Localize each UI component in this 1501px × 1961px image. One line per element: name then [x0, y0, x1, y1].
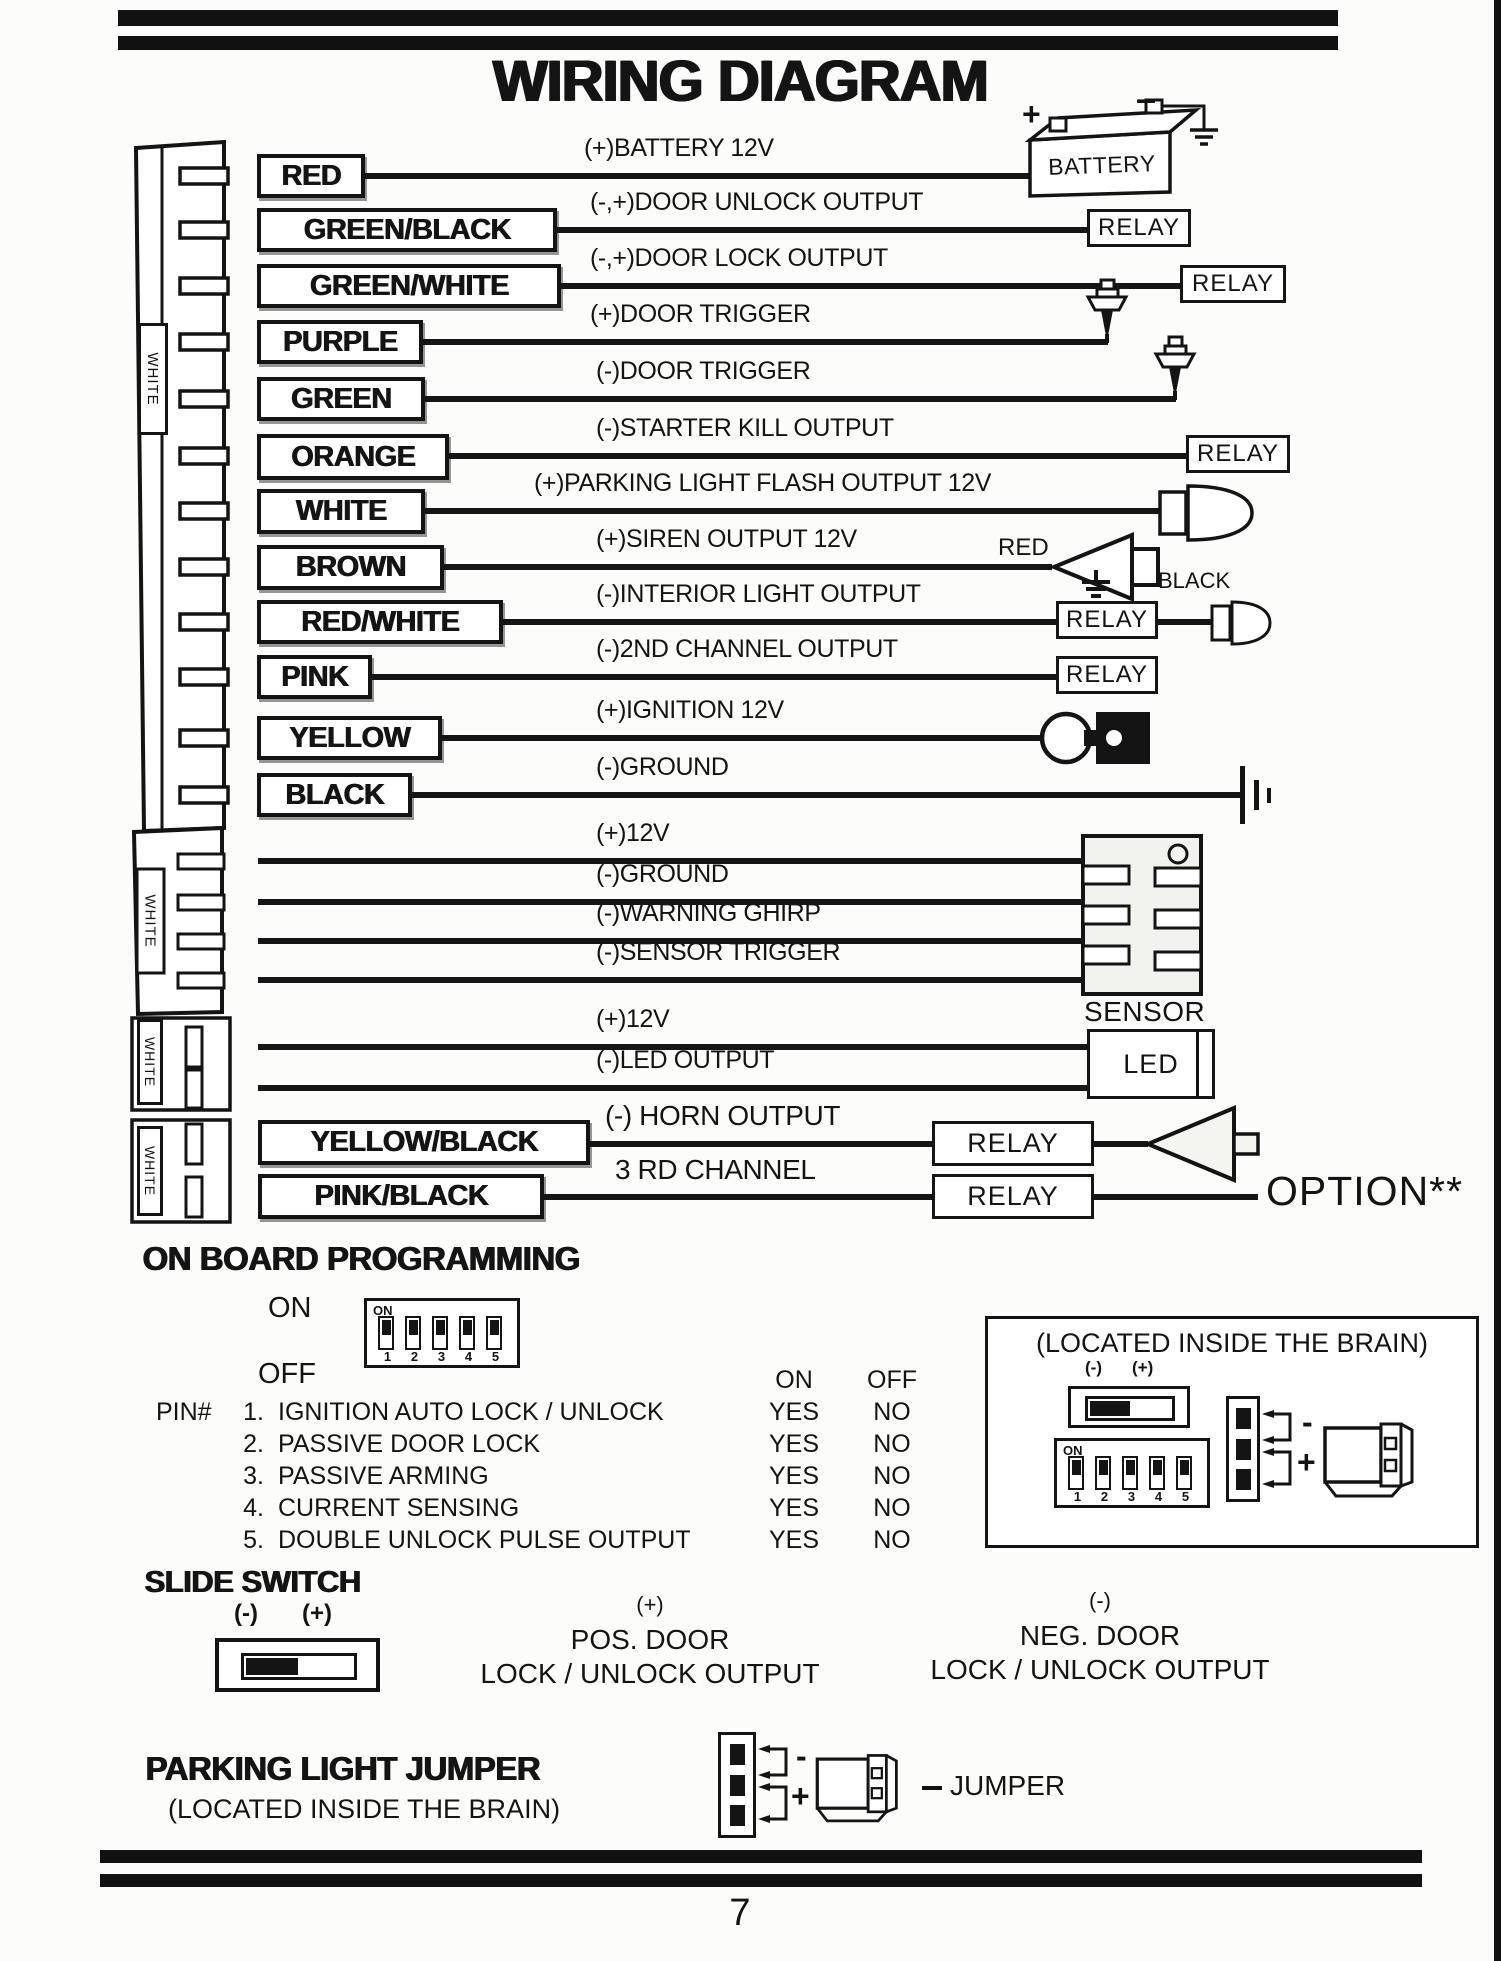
wire-desc: (-)GROUND — [596, 753, 728, 782]
horn-speaker-icon — [1146, 1104, 1262, 1184]
wire-label-brown: BROWN — [257, 545, 444, 590]
parking-jumper-subtitle: (LOCATED INSIDE THE BRAIN) — [168, 1794, 560, 1825]
wire-desc: (-)LED OUTPUT — [596, 1046, 774, 1075]
pin-off: NO — [858, 1462, 926, 1491]
relay-2nd-channel: RELAY — [1056, 656, 1158, 694]
battery-minus-sign: – — [1136, 78, 1156, 120]
led-box-inner-edge — [1196, 1031, 1199, 1097]
wire-yellow — [441, 735, 1042, 741]
jumper-pointer-dash — [922, 1786, 942, 1790]
pin-row-5: 5. DOUBLE UNLOCK PULSE OUTPUT YES NO — [0, 1526, 1000, 1556]
pin-on: YES — [762, 1398, 826, 1427]
bottom-rule-1 — [100, 1850, 1422, 1863]
connector-block-icon — [1322, 1418, 1422, 1506]
wire-desc: (-,+)DOOR UNLOCK OUTPUT — [590, 188, 923, 217]
pin-num: 1. — [218, 1398, 264, 1427]
brain-jumper-plus: + — [1297, 1444, 1316, 1481]
wire-desc: (+)DOOR TRIGGER — [590, 300, 811, 329]
dip-num: 4 — [455, 1349, 482, 1364]
dip-num: 1 — [374, 1349, 401, 1364]
relay-door-lock: RELAY — [1180, 265, 1286, 303]
dip-switch-3 — [432, 1316, 448, 1350]
pin-prefix: PIN# — [156, 1398, 212, 1427]
brain-plus: (+) — [1132, 1358, 1153, 1378]
siren-black-label: BLACK — [1158, 568, 1230, 594]
connector-2-label: WHITE — [136, 868, 166, 975]
pin-name: IGNITION AUTO LOCK / UNLOCK — [278, 1398, 664, 1427]
wire-3rd-channel-2 — [1091, 1194, 1258, 1200]
page-number: 7 — [700, 1892, 780, 1935]
wire-brown — [443, 564, 1052, 570]
relay-starter-kill: RELAY — [1186, 435, 1290, 473]
parking-jumper-header: PARKING LIGHT JUMPER — [145, 1750, 540, 1788]
pin-name: PASSIVE DOOR LOCK — [278, 1430, 540, 1459]
wire-label-orange: ORANGE — [257, 434, 449, 480]
pin-off: NO — [858, 1526, 926, 1555]
pin-name: PASSIVE ARMING — [278, 1462, 489, 1491]
dip-switch-1 — [378, 1316, 394, 1350]
wire-white — [424, 508, 1160, 514]
wire-green — [424, 396, 1176, 402]
dip-num: 3 — [428, 1349, 455, 1364]
brain-slide-switch — [1068, 1386, 1190, 1428]
pin-name: CURRENT SENSING — [278, 1494, 519, 1523]
wire-label-green-white: GREEN/WHITE — [257, 264, 561, 308]
wire-label-green-black: GREEN/BLACK — [257, 208, 557, 252]
jumper-pin — [1236, 1469, 1251, 1490]
dip-num: 1 — [1064, 1489, 1091, 1504]
wire-red-white — [502, 619, 1056, 625]
pin-off: NO — [858, 1494, 926, 1523]
brain-jumper-minus: - — [1302, 1404, 1313, 1441]
bottom-rule-2 — [100, 1874, 1422, 1887]
dip-switch-1 — [1068, 1456, 1084, 1490]
wire-horn — [590, 1141, 932, 1147]
wire-green-black — [555, 227, 1087, 233]
jumper-pin — [730, 1805, 745, 1826]
battery-label: BATTERY — [1042, 150, 1163, 181]
pin-row-2: 2. PASSIVE DOOR LOCK YES NO — [0, 1430, 1000, 1460]
slide-plus: (+) — [302, 1600, 332, 1628]
slide-knob — [1090, 1401, 1130, 1416]
wire-purple — [422, 339, 1108, 345]
connector-1-label: WHITE — [138, 323, 168, 435]
pin-off: NO — [858, 1398, 926, 1427]
wire-desc: (-)INTERIOR LIGHT OUTPUT — [596, 580, 921, 609]
dip-switches — [1068, 1456, 1192, 1490]
dip-switch-3 — [1122, 1456, 1138, 1490]
wire-sensor-12v — [258, 858, 1081, 864]
jumper-header-icon — [1226, 1396, 1260, 1502]
slide-knob — [246, 1658, 298, 1675]
wire-red — [364, 173, 1032, 179]
wire-red-white-2 — [1154, 619, 1212, 625]
wire-horn-2 — [1091, 1141, 1148, 1147]
wire-label-green: GREEN — [257, 377, 425, 421]
battery-plus-sign: + — [1022, 96, 1041, 133]
connector-4-label: WHITE — [137, 1126, 163, 1216]
pin-num: 3. — [218, 1462, 264, 1491]
sensor-connector-icon — [1081, 834, 1203, 996]
page-title: WIRING DIAGRAM — [420, 48, 1060, 115]
dip-num: 2 — [1091, 1489, 1118, 1504]
wire-orange — [448, 453, 1186, 459]
scan-edge — [1494, 0, 1501, 1961]
dip-num: 5 — [482, 1349, 509, 1364]
relay-horn: RELAY — [932, 1121, 1094, 1166]
jumper-pin — [730, 1744, 745, 1765]
wire-desc: (-) HORN OUTPUT — [605, 1100, 840, 1132]
pin-on: YES — [762, 1526, 826, 1555]
pin-name: DOUBLE UNLOCK PULSE OUTPUT — [278, 1526, 691, 1555]
wire-label-purple: PURPLE — [257, 320, 423, 364]
wire-sensor-trigger — [258, 977, 1081, 983]
wire-pink — [371, 674, 1056, 680]
dip-on-label: ON — [268, 1292, 312, 1325]
relay-interior-light: RELAY — [1056, 601, 1158, 639]
sensor-label: SENSOR — [1084, 996, 1204, 1028]
pin-num: 2. — [218, 1430, 264, 1459]
ground-icon — [1240, 764, 1274, 826]
slide-switch — [215, 1638, 380, 1692]
wire-desc: (+)PARKING LIGHT FLASH OUTPUT 12V — [534, 469, 991, 498]
pin-on: YES — [762, 1430, 826, 1459]
brain-minus: (-) — [1085, 1358, 1102, 1378]
wire-desc: (-,+)DOOR LOCK OUTPUT — [590, 244, 888, 273]
ignition-switch-icon — [1038, 708, 1156, 768]
wire-label-pink-black: PINK/BLACK — [258, 1174, 544, 1219]
dip-numbers: 1 2 3 4 5 — [1064, 1489, 1199, 1504]
jumper-pin — [730, 1775, 745, 1796]
manual-page: WIRING DIAGRAM WHITE RED GREEN/BLACK GRE… — [0, 0, 1501, 1961]
wire-led-12v — [258, 1044, 1087, 1050]
dip-switch-2 — [405, 1316, 421, 1350]
interior-light-bulb-icon — [1210, 598, 1274, 648]
pin-row-4: 4. CURRENT SENSING YES NO — [0, 1494, 1000, 1524]
pos-line1: POS. DOOR — [450, 1624, 850, 1656]
neg-line2: LOCK / UNLOCK OUTPUT — [900, 1654, 1300, 1686]
neg-line1: NEG. DOOR — [900, 1620, 1300, 1652]
wire-desc: (+)12V — [596, 819, 669, 848]
wire-label-red-white: RED/WHITE — [257, 600, 503, 644]
wire-led-output — [258, 1085, 1087, 1091]
relay-door-unlock: RELAY — [1087, 209, 1191, 247]
jumper-pin — [1236, 1439, 1251, 1460]
wire-3rd-channel — [543, 1194, 932, 1200]
slide-switch-header: SLIDE SWITCH — [144, 1564, 360, 1600]
pin-switch-icon — [1154, 335, 1196, 401]
dip-switch: ON 1 2 3 4 5 — [364, 1298, 520, 1368]
pos-sign: (+) — [450, 1592, 850, 1618]
parking-light-bulb-icon — [1158, 482, 1258, 544]
wire-desc: (+)12V — [596, 1005, 669, 1034]
slide-track — [241, 1653, 357, 1680]
pin-on: YES — [762, 1494, 826, 1523]
slide-track — [1085, 1396, 1175, 1421]
siren-red-label: RED — [998, 534, 1049, 562]
wire-desc: (-)GROUND — [596, 860, 728, 889]
pin-row-1: PIN# 1. IGNITION AUTO LOCK / UNLOCK YES … — [0, 1398, 1000, 1428]
wire-label-black: BLACK — [257, 773, 412, 817]
option-label: OPTION** — [1266, 1168, 1463, 1215]
wire-desc: (+)BATTERY 12V — [584, 134, 774, 163]
wire-desc: (-)DOOR TRIGGER — [596, 357, 810, 386]
wire-warning-chirp — [258, 938, 1081, 944]
wire-black — [411, 792, 1242, 798]
wire-label-white: WHITE — [257, 489, 425, 534]
col-off: OFF — [858, 1366, 926, 1395]
dip-num: 5 — [1172, 1489, 1199, 1504]
dip-switch-4 — [459, 1316, 475, 1350]
wire-label-red: RED — [257, 154, 365, 198]
neg-sign: (-) — [900, 1588, 1300, 1614]
pin-num: 5. — [218, 1526, 264, 1555]
dip-num: 4 — [1145, 1489, 1172, 1504]
pin-off: NO — [858, 1430, 926, 1459]
brain-dip-switch: ON 1 2 3 4 5 — [1054, 1438, 1210, 1508]
jumper-pin — [1236, 1408, 1251, 1429]
wire-sensor-ground — [258, 899, 1081, 905]
parking-jumper-minus: - — [796, 1738, 807, 1775]
wire-desc: (+)SIREN OUTPUT 12V — [596, 525, 857, 554]
dip-num: 2 — [401, 1349, 428, 1364]
pin-num: 4. — [218, 1494, 264, 1523]
connector-3-label: WHITE — [137, 1019, 163, 1105]
brain-box-title: (LOCATED INSIDE THE BRAIN) — [985, 1328, 1479, 1359]
jumper-label: JUMPER — [950, 1770, 1065, 1802]
pin-on: YES — [762, 1462, 826, 1491]
wire-desc: (-)STARTER KILL OUTPUT — [596, 414, 894, 443]
wire-label-pink: PINK — [257, 655, 372, 699]
wire-label-yellow-black: YELLOW/BLACK — [258, 1120, 590, 1165]
jumper-header-icon — [718, 1732, 756, 1838]
wire-desc: (-)2ND CHANNEL OUTPUT — [596, 635, 898, 664]
programming-header: ON BOARD PROGRAMMING — [142, 1240, 579, 1278]
top-rule-1 — [118, 10, 1338, 26]
ground-icon — [1082, 570, 1122, 606]
dip-off-label: OFF — [258, 1358, 316, 1391]
dip-numbers: 1 2 3 4 5 — [374, 1349, 509, 1364]
dip-switch-4 — [1149, 1456, 1165, 1490]
pin-row-3: 3. PASSIVE ARMING YES NO — [0, 1462, 1000, 1492]
pos-line2: LOCK / UNLOCK OUTPUT — [450, 1658, 850, 1690]
wire-desc: 3 RD CHANNEL — [615, 1154, 816, 1186]
col-on: ON — [762, 1366, 826, 1395]
dip-switch-2 — [1095, 1456, 1111, 1490]
parking-jumper-plus: + — [791, 1778, 810, 1815]
relay-3rd-channel: RELAY — [932, 1174, 1094, 1219]
dip-num: 3 — [1118, 1489, 1145, 1504]
dip-switches — [378, 1316, 502, 1350]
dip-switch-5 — [486, 1316, 502, 1350]
wire-desc: (+)IGNITION 12V — [596, 696, 784, 725]
connector-block-icon — [814, 1750, 906, 1830]
pin-switch-icon — [1086, 278, 1128, 344]
slide-minus: (-) — [234, 1600, 258, 1628]
connector-white-1-icon — [128, 140, 236, 834]
dip-switch-5 — [1176, 1456, 1192, 1490]
wire-label-yellow: YELLOW — [257, 716, 442, 760]
